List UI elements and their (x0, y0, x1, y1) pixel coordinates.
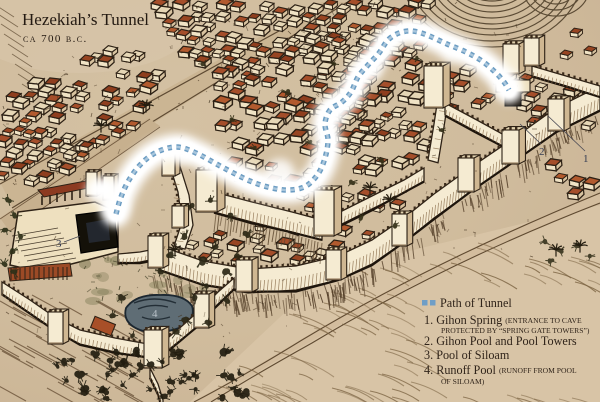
svg-text:3. Pool of Siloam: 3. Pool of Siloam (424, 348, 510, 362)
svg-text:4: 4 (152, 308, 158, 320)
svg-text:Path of Tunnel: Path of Tunnel (440, 296, 512, 310)
svg-text:1. Gihon Spring (ENTRANCE TO C: 1. Gihon Spring (ENTRANCE TO CAVE (424, 313, 582, 327)
svg-text:3: 3 (56, 238, 62, 250)
svg-text:ca 700 b.c.: ca 700 b.c. (23, 33, 88, 45)
svg-text:Hezekiah’s Tunnel: Hezekiah’s Tunnel (22, 10, 149, 29)
svg-text:2: 2 (539, 146, 545, 158)
svg-text:OF SILOAM): OF SILOAM) (441, 377, 485, 386)
svg-text:4. Runoff Pool (RUNOFF FROM PO: 4. Runoff Pool (RUNOFF FROM POOL (424, 363, 577, 377)
svg-text:1: 1 (583, 153, 589, 165)
svg-text:2. Gihon Pool and Pool Towers: 2. Gihon Pool and Pool Towers (424, 334, 577, 348)
